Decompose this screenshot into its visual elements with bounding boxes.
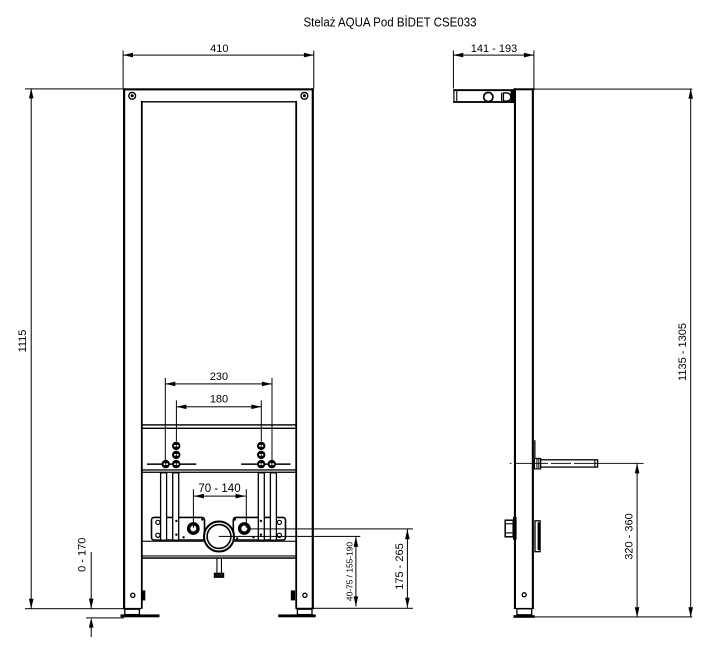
svg-text:230: 230 (210, 371, 228, 383)
svg-text:0 - 170: 0 - 170 (77, 538, 89, 572)
svg-text:1135 - 1305: 1135 - 1305 (677, 323, 689, 381)
svg-text:320 - 360: 320 - 360 (624, 513, 636, 559)
svg-text:Stelaż AQUA Pod BİDET CSE033: Stelaż AQUA Pod BİDET CSE033 (304, 15, 477, 30)
svg-text:1115: 1115 (17, 330, 29, 353)
svg-text:70 - 140: 70 - 140 (198, 483, 240, 495)
svg-text:410: 410 (210, 43, 228, 55)
svg-text:180: 180 (210, 394, 228, 406)
svg-text:175 - 265: 175 - 265 (394, 543, 406, 589)
svg-text:40-75 / 155-190: 40-75 / 155-190 (345, 542, 355, 601)
svg-text:141 - 193: 141 - 193 (471, 43, 517, 55)
